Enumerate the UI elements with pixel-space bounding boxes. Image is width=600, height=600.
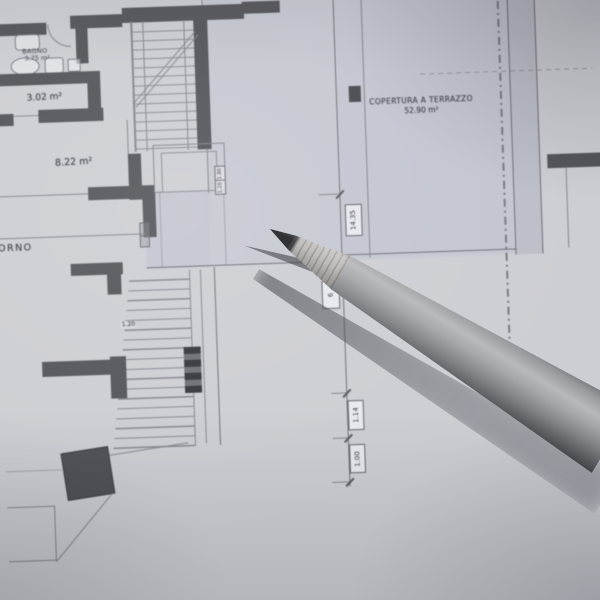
room-label-giorno: ORNO xyxy=(0,242,33,254)
dimension-mark xyxy=(140,235,150,247)
room-area-label: 3.75 m² xyxy=(24,54,50,63)
dimension-value: 6 xyxy=(327,293,335,298)
balcony-edge xyxy=(57,493,114,562)
wall-segment xyxy=(38,108,103,123)
door-line xyxy=(13,115,38,117)
plan-line xyxy=(0,233,146,239)
dimension-label: 14.35 xyxy=(345,204,363,237)
column xyxy=(60,446,115,501)
dimension-value: 1.20 xyxy=(217,182,223,193)
blueprint-photo: 14.35 6 1.14 1.00 1.80 1.20 1.20 COPERTU… xyxy=(0,0,600,600)
plan-line xyxy=(127,120,129,154)
dimension-label-small: 1.20 xyxy=(215,180,227,195)
dimension-value: 1.80 xyxy=(217,168,223,179)
plan-line xyxy=(6,469,62,472)
balcony-edge xyxy=(54,506,57,562)
fixture-icon xyxy=(67,59,80,72)
landing-rail xyxy=(161,151,218,193)
balcony-edge xyxy=(9,560,57,563)
plan-line xyxy=(566,168,570,248)
balcony-edge xyxy=(7,506,55,509)
dimension-value: 14.35 xyxy=(349,210,358,230)
wall-hatch xyxy=(184,346,203,393)
dimension-value: 1.00 xyxy=(353,451,362,467)
stair-stringer xyxy=(214,267,222,445)
room-area-label: 3.02 m² xyxy=(27,92,63,104)
wall-segment xyxy=(547,152,600,168)
wall-segment xyxy=(242,1,280,14)
dimension-label: 1.14 xyxy=(348,400,365,431)
wall-segment xyxy=(0,114,14,127)
wall-segment xyxy=(88,185,142,200)
wall-segment xyxy=(0,71,87,86)
dimension-value: 1.14 xyxy=(352,407,361,423)
wall-segment xyxy=(110,356,127,399)
wall-segment xyxy=(107,268,122,294)
stair-width-label: 1.20 xyxy=(121,321,137,329)
wall-segment xyxy=(75,23,88,63)
dimension-label: 1.00 xyxy=(349,444,366,474)
door-arc-icon xyxy=(47,24,71,48)
plan-line xyxy=(0,193,88,197)
room-area-label: 8.22 m² xyxy=(55,156,93,169)
